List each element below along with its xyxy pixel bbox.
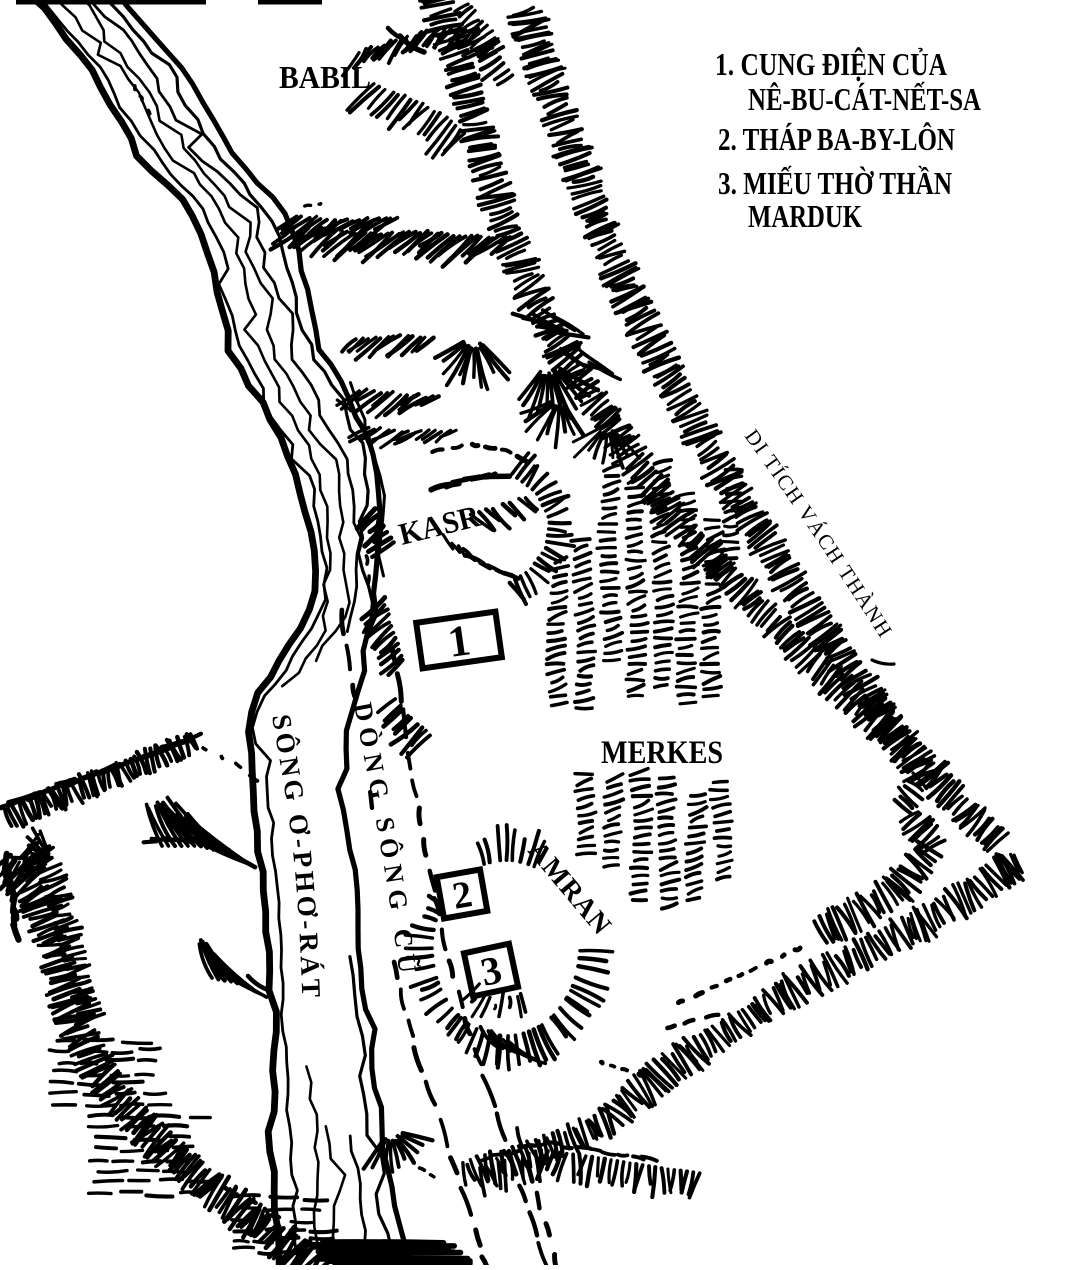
svg-text:1. CUNG ĐIỆN CỦA: 1. CUNG ĐIỆN CỦA (715, 46, 947, 82)
svg-text:NÊ-BU-CÁT-NẾT-SA: NÊ-BU-CÁT-NẾT-SA (748, 81, 981, 117)
svg-text:MERKES: MERKES (601, 735, 723, 771)
svg-text:MARDUK: MARDUK (748, 198, 862, 234)
svg-text:2. THÁP BA-BY-LÔN: 2. THÁP BA-BY-LÔN (718, 121, 955, 157)
svg-text:3. MIẾU THỜ THẦN: 3. MIẾU THỜ THẦN (718, 165, 952, 201)
svg-text:BABIL: BABIL (279, 59, 371, 95)
